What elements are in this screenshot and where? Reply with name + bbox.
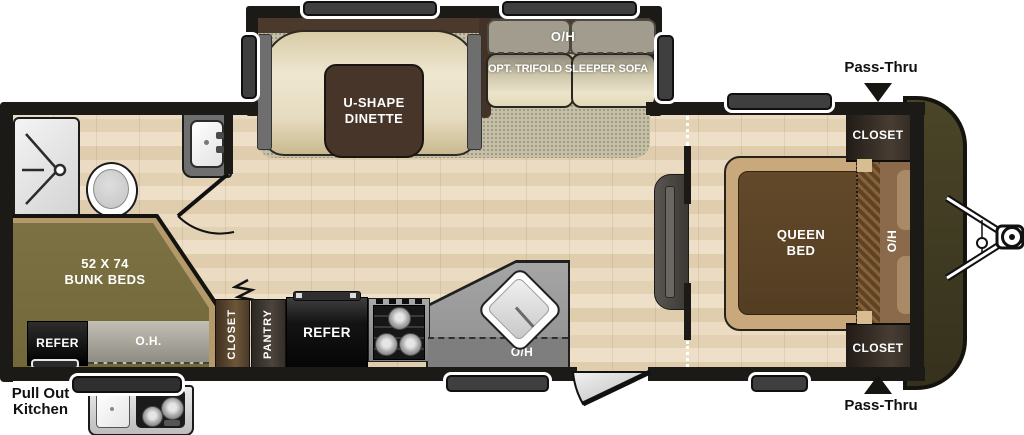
headboard-corner-bottom <box>857 311 872 324</box>
sofa-cushion-left <box>486 53 574 108</box>
sofa-cushion-right <box>571 53 656 108</box>
entry-door-swing <box>563 369 658 415</box>
galley-closet-label: CLOSET <box>226 309 239 360</box>
galley-pantry: PANTRY <box>251 299 286 369</box>
sofa-label: OPT. TRIFOLD SLEEPER SOFA <box>480 63 656 76</box>
dinette-label: U-SHAPE DINETTE <box>343 95 404 127</box>
galley-refer-handle-cap-left <box>296 293 302 298</box>
sofa-fold-line <box>488 52 653 54</box>
pullout-grease-tray <box>164 420 180 426</box>
pullout-kitchen-handle <box>72 376 182 393</box>
wall-top-left <box>0 102 258 115</box>
wall-front <box>910 102 924 381</box>
stove-knob-1 <box>376 299 383 304</box>
stove-burner-left <box>375 333 398 356</box>
window-sofa-top <box>502 1 637 16</box>
rv-floorplan: U-SHAPE DINETTE O/H OPT. TRIFOLD SLEEPER… <box>0 0 1024 435</box>
divider-curtain-line-bottom <box>686 341 689 367</box>
pullout-burner-right <box>161 397 184 420</box>
stove-knob-4 <box>415 299 422 304</box>
bath-door-swing <box>162 168 238 238</box>
galley-refer-label: REFER <box>303 325 351 341</box>
wall-bath-stub <box>224 108 233 174</box>
window-dinette-side <box>241 35 257 99</box>
window-bedroom-top <box>727 93 832 110</box>
pass-thru-top-arrow <box>864 83 892 102</box>
front-closet-bottom: CLOSET <box>846 323 910 371</box>
headboard-corner-top <box>857 159 872 172</box>
wall-partition-upper <box>684 146 691 204</box>
pullout-burner-left <box>142 406 163 427</box>
pullout-sink-drain <box>110 407 114 411</box>
bunk-overhead-cabinet: O.H. <box>88 321 209 364</box>
stove-burner-top <box>388 307 411 330</box>
pass-thru-bottom-arrow <box>864 375 892 394</box>
galley-closet: CLOSET <box>215 299 250 369</box>
front-closet-top-label: CLOSET <box>852 128 903 143</box>
divider-curtain-line-top <box>686 116 689 146</box>
dinette-pillar-left <box>257 34 272 150</box>
stove-knob-2 <box>389 299 396 304</box>
window-sofa-side <box>657 35 674 101</box>
bunk-label: 52 X 74 BUNK BEDS <box>25 256 185 288</box>
stove-knob-3 <box>402 299 409 304</box>
bath-faucet-icon <box>204 140 209 145</box>
bunk-refer-label: REFER <box>36 336 79 351</box>
sofa-overhead-label: O/H <box>528 29 598 45</box>
shower-door-icon <box>16 120 74 216</box>
front-closet-bottom-label: CLOSET <box>852 341 903 356</box>
galley-refer: REFER <box>286 297 368 369</box>
stove-burner-right <box>399 333 422 356</box>
jack-wheel-icon <box>977 238 987 248</box>
trailer-hitch <box>945 192 1024 284</box>
dinette-pillar-right <box>467 34 482 150</box>
wall-rear <box>0 102 13 382</box>
pass-thru-top-label: Pass-Thru <box>831 60 931 76</box>
tv-screen <box>665 186 675 298</box>
pass-thru-bottom-label: Pass-Thru <box>831 398 931 414</box>
queen-bed-label: QUEEN BED <box>777 227 825 259</box>
wall-partition-lower <box>684 283 691 340</box>
bunk-overhead-label: O.H. <box>135 334 161 349</box>
window-bedroom-bottom <box>751 375 808 392</box>
bunk-refer: REFER <box>27 321 88 366</box>
pullout-kitchen-label: Pull Out Kitchen <box>3 386 78 418</box>
bath-faucet-knob-bottom <box>216 146 224 153</box>
toilet-bowl <box>93 169 129 209</box>
front-closet-top: CLOSET <box>846 110 910 162</box>
headboard-pattern <box>856 158 882 325</box>
queen-bed-mattress: QUEEN BED <box>738 171 864 315</box>
galley-pantry-label: PANTRY <box>262 309 275 359</box>
window-dinette-top <box>303 1 437 16</box>
dinette-table: U-SHAPE DINETTE <box>324 64 424 158</box>
window-counter-bottom <box>446 375 549 392</box>
bath-faucet-knob-top <box>216 132 224 139</box>
galley-refer-handle-cap-right <box>350 293 356 298</box>
